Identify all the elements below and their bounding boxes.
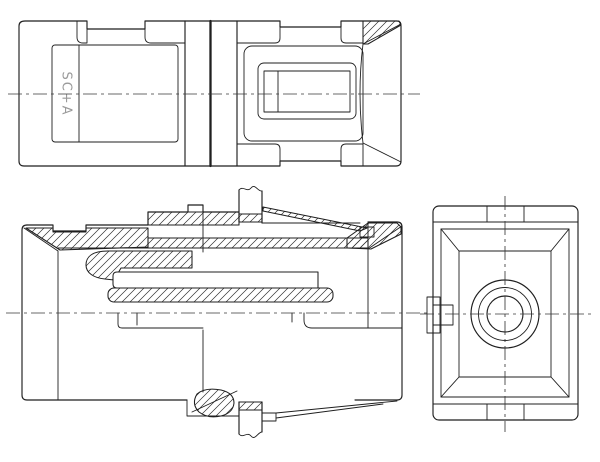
upper-strip-hatch: [148, 212, 239, 225]
left-wall-hatch: [26, 228, 148, 250]
engineering-drawing-canvas: SC+A: [0, 0, 600, 462]
sleeve-step-lower: [118, 313, 203, 328]
top-right-step-wall: [237, 21, 280, 43]
side-view: [420, 196, 592, 432]
top-left-step-wall2: [145, 29, 185, 43]
right-bore-line: [292, 313, 402, 328]
side-outline: [433, 206, 578, 420]
sleeve-holder-hatch: [108, 288, 333, 302]
cone-slant-bottom: [363, 143, 401, 162]
top-view: SC+A: [8, 21, 420, 166]
top-right-step-wall2: [341, 21, 363, 44]
ferrule-sleeve: [113, 272, 318, 288]
connector-window-inner: [264, 71, 350, 112]
connector-window-outer: [244, 46, 363, 141]
mounting-tab-bottom: [239, 402, 262, 438]
front-section-view: [6, 186, 430, 437]
bottom-right-step-wall2: [341, 144, 363, 166]
sc-adapter-drawing: SC+A: [0, 0, 600, 462]
top-left-step-wall: [77, 21, 87, 43]
side-band-ticks: [487, 206, 524, 420]
side-latch-detail: [427, 297, 453, 333]
mounting-tab-top: [239, 186, 262, 223]
latch-arm-bottom: [262, 401, 397, 421]
lower-strip-hatch: [148, 238, 368, 248]
latch-cross-section: [192, 389, 237, 417]
bottom-right-step-wall: [237, 144, 280, 166]
